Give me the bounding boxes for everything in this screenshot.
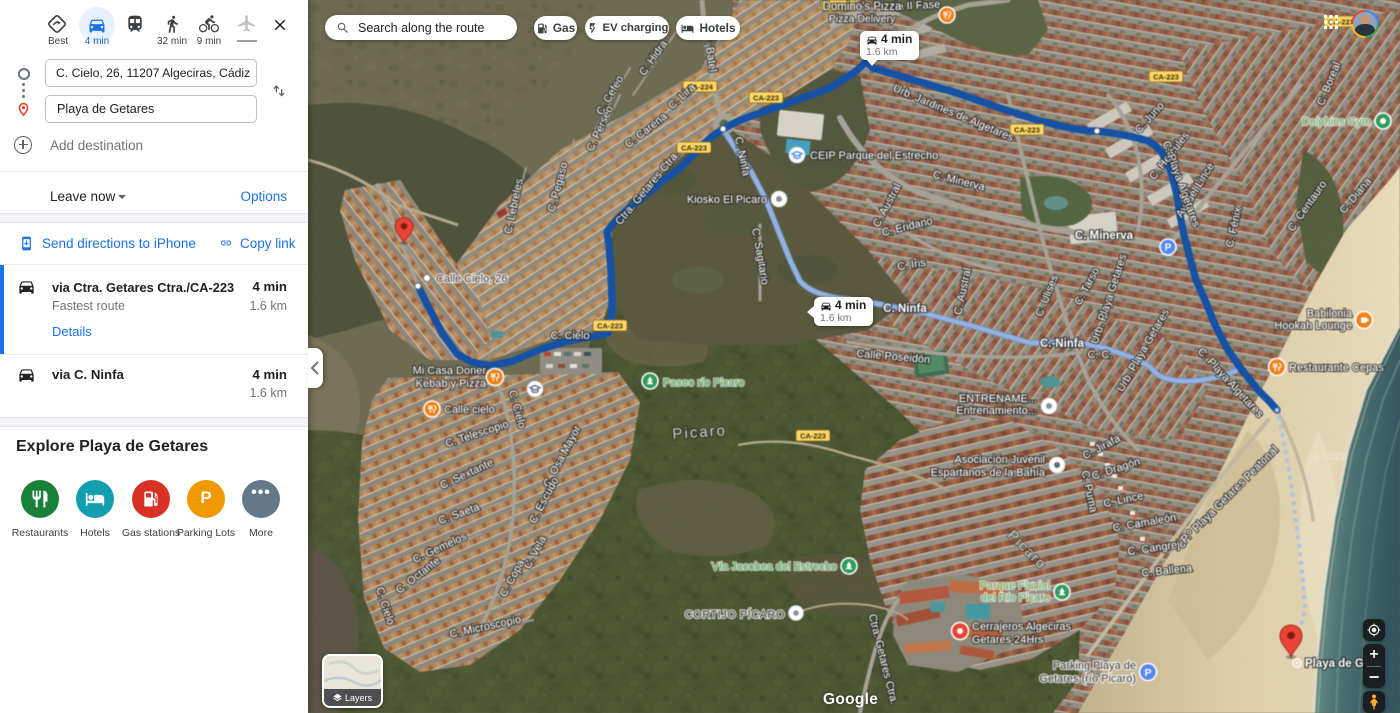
svg-text:Espartanos de la Bahía: Espartanos de la Bahía (931, 467, 1046, 479)
svg-text:P: P (1144, 667, 1151, 679)
svg-text:C. Ninfa: C. Ninfa (883, 303, 927, 315)
svg-text:CA-223: CA-223 (800, 432, 826, 441)
svg-text:C. Minerva: C. Minerva (1075, 230, 1134, 242)
svg-text:Pizza Delivery: Pizza Delivery (829, 13, 896, 25)
svg-text:C.-Ninfa: C.-Ninfa (1040, 338, 1085, 350)
svg-text:Dolphins Gym: Dolphins Gym (1302, 116, 1371, 128)
svg-text:Asociación Juvenil: Asociación Juvenil (955, 454, 1046, 466)
svg-text:Parque Fluvial: Parque Fluvial (980, 580, 1050, 592)
svg-text:Kiosko El Picaro: Kiosko El Picaro (687, 194, 767, 206)
svg-text:CA-223: CA-223 (1153, 73, 1179, 82)
svg-text:CA-223: CA-223 (753, 94, 779, 103)
svg-text:CA-223: CA-223 (597, 322, 623, 331)
svg-text:Hookah Lounge: Hookah Lounge (1274, 320, 1352, 332)
svg-text:CA-223: CA-223 (681, 144, 707, 153)
svg-text:Paseo río Picaro: Paseo río Picaro (663, 377, 744, 389)
svg-text:© 2023: © 2023 (1313, 452, 1346, 463)
svg-text:C. C.: C. C. (1087, 349, 1112, 361)
svg-text:Getares (río Picaro): Getares (río Picaro) (1039, 673, 1136, 685)
svg-text:del Río Picaro: del Río Picaro (981, 592, 1050, 604)
svg-text:Getares 24Hrs: Getares 24Hrs (972, 634, 1044, 646)
svg-text:CORTIJO PÍCARO: CORTIJO PÍCARO (685, 608, 785, 621)
svg-text:P: P (1165, 243, 1172, 254)
svg-text:Restaurante Cepas: Restaurante Cepas (1289, 362, 1384, 374)
svg-text:Calle cielo: Calle cielo (444, 404, 495, 416)
svg-text:Domino's Pizza: Domino's Pizza (823, 1, 902, 13)
svg-text:Cerrajeros Algeciras: Cerrajeros Algeciras (972, 621, 1072, 633)
svg-text:Vía Jacobea del Estrecho: Vía Jacobea del Estrecho (712, 561, 837, 573)
svg-text:Parking Playa de: Parking Playa de (1053, 660, 1136, 672)
svg-text:Calle Cielo, 26: Calle Cielo, 26 (436, 273, 508, 285)
svg-text:ENTRENAME...: ENTRENAME... (959, 393, 1037, 405)
svg-text:Babilonia: Babilonia (1307, 308, 1353, 320)
svg-text:Kebab y Pizza: Kebab y Pizza (416, 378, 487, 390)
svg-text:CA-223: CA-223 (1014, 126, 1040, 135)
svg-text:C. Cielo: C. Cielo (550, 330, 589, 342)
svg-text:Entrenamiento...: Entrenamiento... (956, 405, 1037, 417)
svg-text:Mi Casa Doner: Mi Casa Doner (413, 365, 487, 377)
svg-text:CEIP Parque del Estrecho: CEIP Parque del Estrecho (810, 150, 938, 162)
